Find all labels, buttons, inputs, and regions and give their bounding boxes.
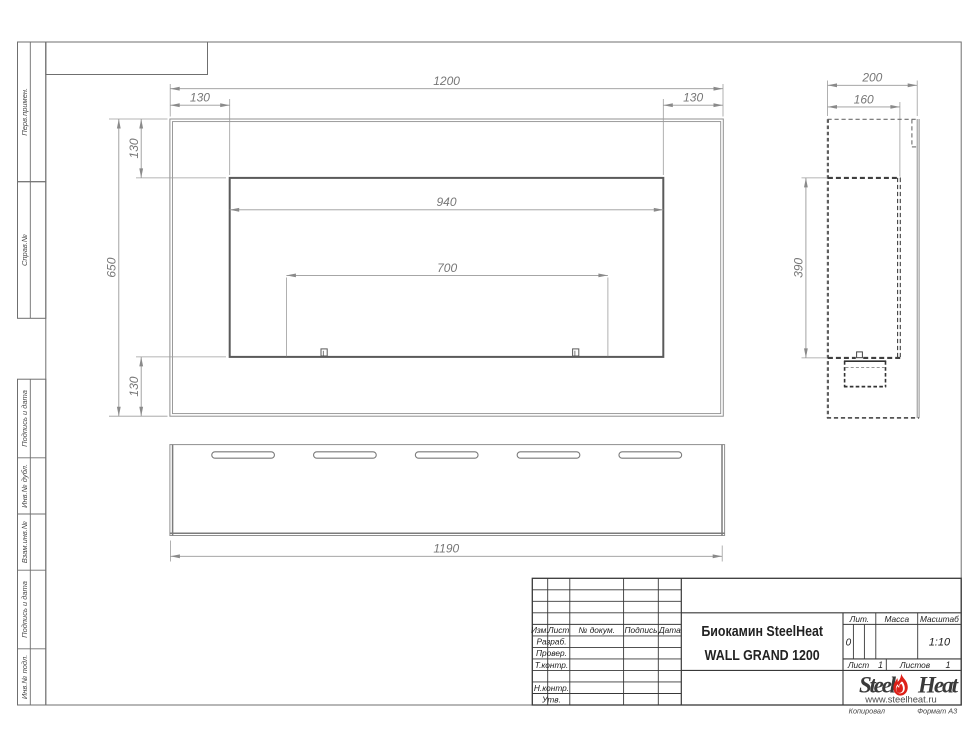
svg-text:Масса: Масса [885,614,910,624]
svg-text:Подпись: Подпись [625,625,658,635]
svg-text:Утв.: Утв. [541,694,561,704]
svg-text:Формат А3: Формат А3 [917,707,957,716]
svg-text:Листов: Листов [899,660,931,670]
svg-text:1200: 1200 [433,74,460,88]
svg-text:Взам.инв.№: Взам.инв.№ [20,521,29,563]
svg-text:Дата: Дата [658,625,681,635]
svg-text:0: 0 [846,638,852,649]
svg-text:1190: 1190 [433,542,459,556]
svg-text:130: 130 [127,138,141,158]
svg-text:Инв.№ подл.: Инв.№ подл. [20,655,29,699]
svg-text:Лист: Лист [847,660,869,670]
svg-text:Перв.примен.: Перв.примен. [20,88,29,136]
svg-text:Лит.: Лит. [849,614,869,624]
svg-text:Подпись и дата: Подпись и дата [20,581,29,638]
svg-text:Провер.: Провер. [536,648,567,658]
svg-text:160: 160 [854,92,874,106]
svg-text:Справ.№: Справ.№ [20,234,29,266]
svg-text:390: 390 [792,258,806,278]
svg-text:Биокамин SteelHeat: Биокамин SteelHeat [701,623,823,639]
svg-text:1: 1 [878,660,883,670]
svg-text:940: 940 [436,195,456,209]
svg-text:www.steelheat.ru: www.steelheat.ru [864,694,936,705]
svg-text:Разраб.: Разраб. [536,637,566,647]
svg-text:130: 130 [683,91,703,105]
svg-text:Т.контр.: Т.контр. [535,660,568,670]
svg-text:1:10: 1:10 [929,637,951,649]
svg-text:WALL GRAND 1200: WALL GRAND 1200 [705,647,820,663]
svg-text:130: 130 [190,91,210,105]
svg-text:200: 200 [861,71,882,85]
svg-text:130: 130 [127,376,141,396]
svg-text:Лист: Лист [547,625,569,635]
svg-text:650: 650 [104,257,118,277]
svg-text:1: 1 [945,660,950,670]
svg-text:700: 700 [437,261,457,275]
svg-text:Н.контр.: Н.контр. [534,683,569,693]
svg-text:Инв.№ дубл.: Инв.№ дубл. [20,464,29,508]
svg-text:Подпись и дата: Подпись и дата [20,390,29,447]
svg-text:Копировал: Копировал [849,707,885,716]
svg-text:Масштаб: Масштаб [920,614,959,624]
svg-text:№ докум.: № докум. [578,625,615,635]
svg-text:Изм.: Изм. [531,625,549,635]
